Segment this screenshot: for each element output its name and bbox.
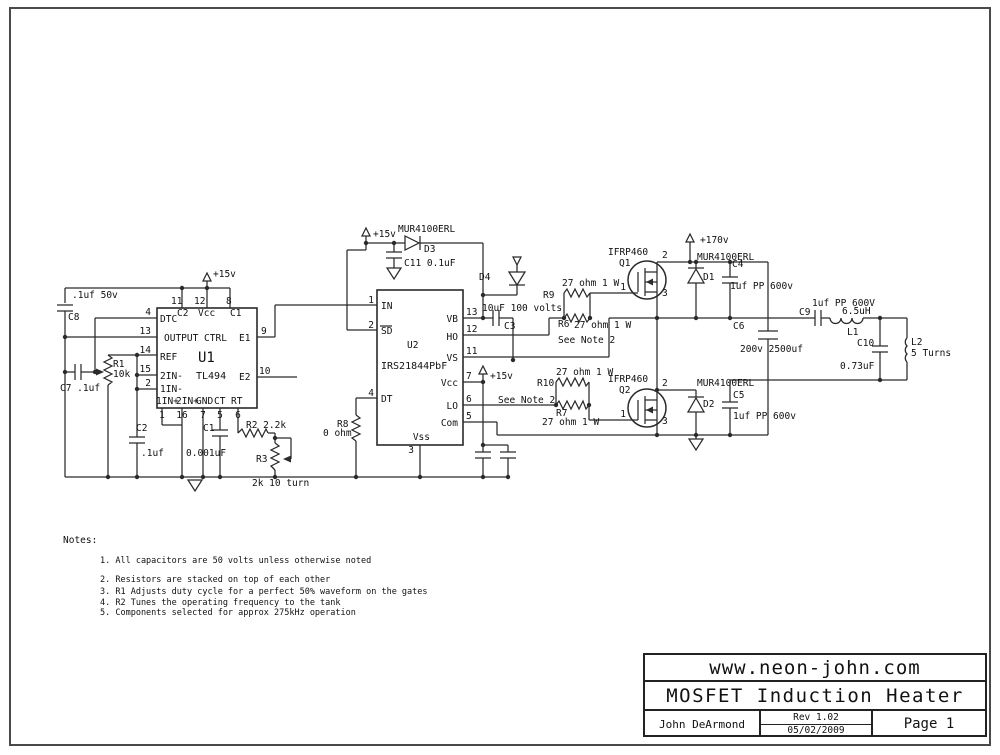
res-r6-ref: R6 [558,319,570,330]
d4-ref: D4 [479,272,491,283]
cap-c6-value: 200v 2500uf [740,344,803,355]
schematic-page: .1uf 50vC8C7 .1ufR110k+15v11128413141529… [0,0,1000,755]
u2-pin2-num: 2 [368,320,374,331]
cap-c11-label: C11 0.1uF [404,258,456,269]
schematic-canvas: .1uf 50vC8C7 .1ufR110k+15v11128413141529… [0,0,1000,755]
u1-label-gnd: GND [196,396,213,407]
u1-pin11-num: 11 [171,296,183,307]
d3-plus15v-label: +15v [373,229,396,240]
u1-pin4-num: 4 [145,307,151,318]
u1-pin14-num: 14 [140,345,152,356]
cap-c6-ref: C6 [733,321,745,332]
u1-name: U1 [198,350,215,366]
res-r9-body [564,289,590,297]
cap-c8-ref: C8 [68,312,80,323]
pot-r3-ref: R3 [256,454,267,465]
u2-pin6-num: 6 [466,394,472,405]
u1-plus15v-arrow-icon [203,273,211,281]
u1-pin5-num: 5 [217,410,223,421]
q2-pin1-num: 1 [620,409,626,420]
cap-c10-ref: C10 [857,338,874,349]
ho-see-note: See Note 2 [558,335,615,346]
d2-part: MUR4100ERL [697,378,754,389]
cap-c1-value: 0.001uF [186,448,226,459]
q2-body-arrow [646,407,653,414]
u2-label-sd: SD [381,326,393,337]
q2-part: IFRP460 [608,374,648,385]
cap-c2-ref: C2 [136,423,147,434]
q1-part: IFRP460 [608,247,648,258]
q1-ref: Q1 [619,258,631,269]
u1-label-c2pin: C2 [177,308,188,319]
d3-part: MUR4100ERL [398,224,455,235]
u2-label-com: Com [441,418,458,429]
u2-pin4-num: 4 [368,388,374,399]
title-block-page: Page 1 [873,711,985,737]
pot-r1-body [104,355,112,385]
u2-label-lo: LO [447,401,459,412]
u1-label-1in-: 1IN- [160,384,183,395]
u2-pin7-num: 7 [466,371,472,382]
title-block-title: MOSFET Induction Heater [645,682,985,711]
u2-pin5-num: 5 [466,411,472,422]
cap-c3-ref: C3 [504,321,515,332]
res-r9-value: 27 ohm 1 W [562,278,619,289]
res-r9-ref: R9 [543,290,555,301]
res-r8-value: 0 ohm [323,428,352,439]
cap-c3-value: 10uF 100 volts [482,303,562,314]
d1-ref: D1 [703,272,715,283]
pot-r3-wiper-arrow [283,456,291,463]
note-item-1: 1. All capacitors are 50 volts unless ot… [100,556,371,566]
u2-label-dt: DT [381,394,393,405]
u2-label-vss: Vss [413,432,430,443]
u2-part: IRS21844PbF [381,361,447,372]
ind-l1-ref: L1 [847,327,859,338]
note-item-4: 4. R2 Tunes the operating frequency to t… [100,598,341,608]
cap-c9-ref: C9 [799,307,811,318]
pot-r3-body [271,443,279,470]
q1-body-arrow [646,279,653,286]
q2-pin3-num: 3 [662,416,668,427]
title-block-website: www.neon-john.com [645,655,985,682]
u1-pin1-num: 1 [159,410,165,421]
cap-c4-ref: C4 [732,259,744,270]
d1-part: MUR4100ERL [697,252,754,263]
u1-plus15v-label: +15v [213,269,236,280]
q1-pin1-num: 1 [620,282,626,293]
junction-dots [63,241,882,479]
res-r10-value: 27 ohm 1 W [556,367,613,378]
cap-c5-value: 1uf PP 600v [733,411,796,422]
lo-see-note: See Note 2 [498,395,555,406]
u1-label-e1: E1 [239,333,251,344]
d2-ref: D2 [703,399,714,410]
u1-label-outputctrl: OUTPUT CTRL [164,333,227,344]
res-r6-value: 27 ohm 1 W [574,320,631,331]
ind-l1-value: 6.5uH [842,306,871,317]
title-block-date: 05/02/2009 [761,725,871,738]
pot-r3-value: 2k 10 turn [252,478,309,489]
u2-label-vs: VS [447,353,459,364]
d3-diode-symbol [405,236,419,250]
res-r8-body [352,415,360,441]
q1-pin3-num: 3 [662,288,668,299]
u2-pin11-num: 11 [466,346,478,357]
u1-pin10-num: 10 [259,366,271,377]
d4-arrow-icon [513,257,521,265]
u2-pin13-num: 13 [466,307,477,318]
u1-pin13-num: 13 [140,326,151,337]
u2-label-ho: HO [447,332,459,343]
d3-ref: D3 [424,244,435,255]
title-block: www.neon-john.com MOSFET Induction Heate… [643,653,987,737]
cap-c5-ref: C5 [733,390,744,401]
q2-pin2-num: 2 [662,378,668,389]
u1-label-dtc: DTC [160,314,177,325]
d3-plus15v-arrow-icon [362,228,370,236]
title-block-author: John DeArmond [645,711,761,737]
res-r10-ref: R10 [537,378,554,389]
u2-label-in: IN [381,301,393,312]
u1-label-vccpin: Vcc [198,308,215,319]
u1-label-ref: REF [160,352,177,363]
u2-pin1-num: 1 [368,295,374,306]
cap-c8-value: .1uf 50v [72,290,118,301]
notes-heading: Notes: [63,535,97,546]
q2-ref: Q2 [619,385,630,396]
title-block-rev: Rev 1.02 [761,711,871,725]
q2-mosfet-symbol [628,389,666,427]
u1-pin7-num: 7 [200,410,206,421]
cap-c10-value: 0.73uF [840,361,875,372]
u1-pin15-num: 15 [140,364,151,375]
note-item-5: 5. Components selected for approx 275kHz… [100,608,356,618]
u2-label-vb: VB [447,314,459,325]
u1-label-ct: CT [214,396,226,407]
ind-l2-ref: L2 [911,337,922,348]
cap-c7-label: C7 .1uf [60,383,100,394]
pot-r1-value: 10k [113,369,130,380]
u1-pin12-num: 12 [194,296,205,307]
cap-c1-ref: C1 [203,423,215,434]
u1-ground-icon [188,480,202,491]
d1-diode-symbol [688,269,704,283]
u1-pin8-num: 8 [226,296,232,307]
ind-l2-value: 5 Turns [911,348,951,359]
d4-diode-symbol [509,272,525,285]
plus170v-label: +170v [700,235,729,246]
note-item-3: 3. R1 Adjusts duty cycle for a perfect 5… [100,587,428,597]
u1-part: TL494 [196,371,226,382]
bridge-ground-icon [689,439,703,450]
u1-label-e2: E2 [239,372,250,383]
u2-plus15v-arrow-icon [479,366,487,374]
u1-label-2in-: 2IN- [160,371,183,382]
u1-label-rt: RT [231,396,243,407]
u1-pin2-num: 2 [145,378,151,389]
cap-c2-value: .1uf [141,448,164,459]
note-item-2: 2. Resistors are stacked on top of each … [100,575,330,585]
u2-pin3-num: 3 [408,445,414,456]
q1-mosfet-symbol [628,261,666,299]
res-r2-label: R2 2.2k [246,420,286,431]
u1-label-c1pin: C1 [230,308,242,319]
u1-pin16-num: 16 [176,410,188,421]
d2-diode-symbol [688,398,704,412]
q1-pin2-num: 2 [662,250,668,261]
u2-plus15v-label: +15v [490,371,513,382]
c11-ground-icon [387,268,401,279]
title-block-rev-cell: Rev 1.02 05/02/2009 [761,711,873,737]
u1-pin6-num: 6 [235,410,241,421]
res-r10-body [556,378,589,386]
res-r7-value: 27 ohm 1 W [542,417,599,428]
plus170v-arrow-icon [686,234,694,242]
u2-label-vcc: Vcc [441,378,458,389]
u1-pin9-num: 9 [261,326,267,337]
u2-pin12-num: 12 [466,324,477,335]
cap-c4-value: 1uf PP 600v [730,281,793,292]
notes-text: Notes:1. All capacitors are 50 volts unl… [63,535,428,618]
u2-name: U2 [407,340,418,351]
